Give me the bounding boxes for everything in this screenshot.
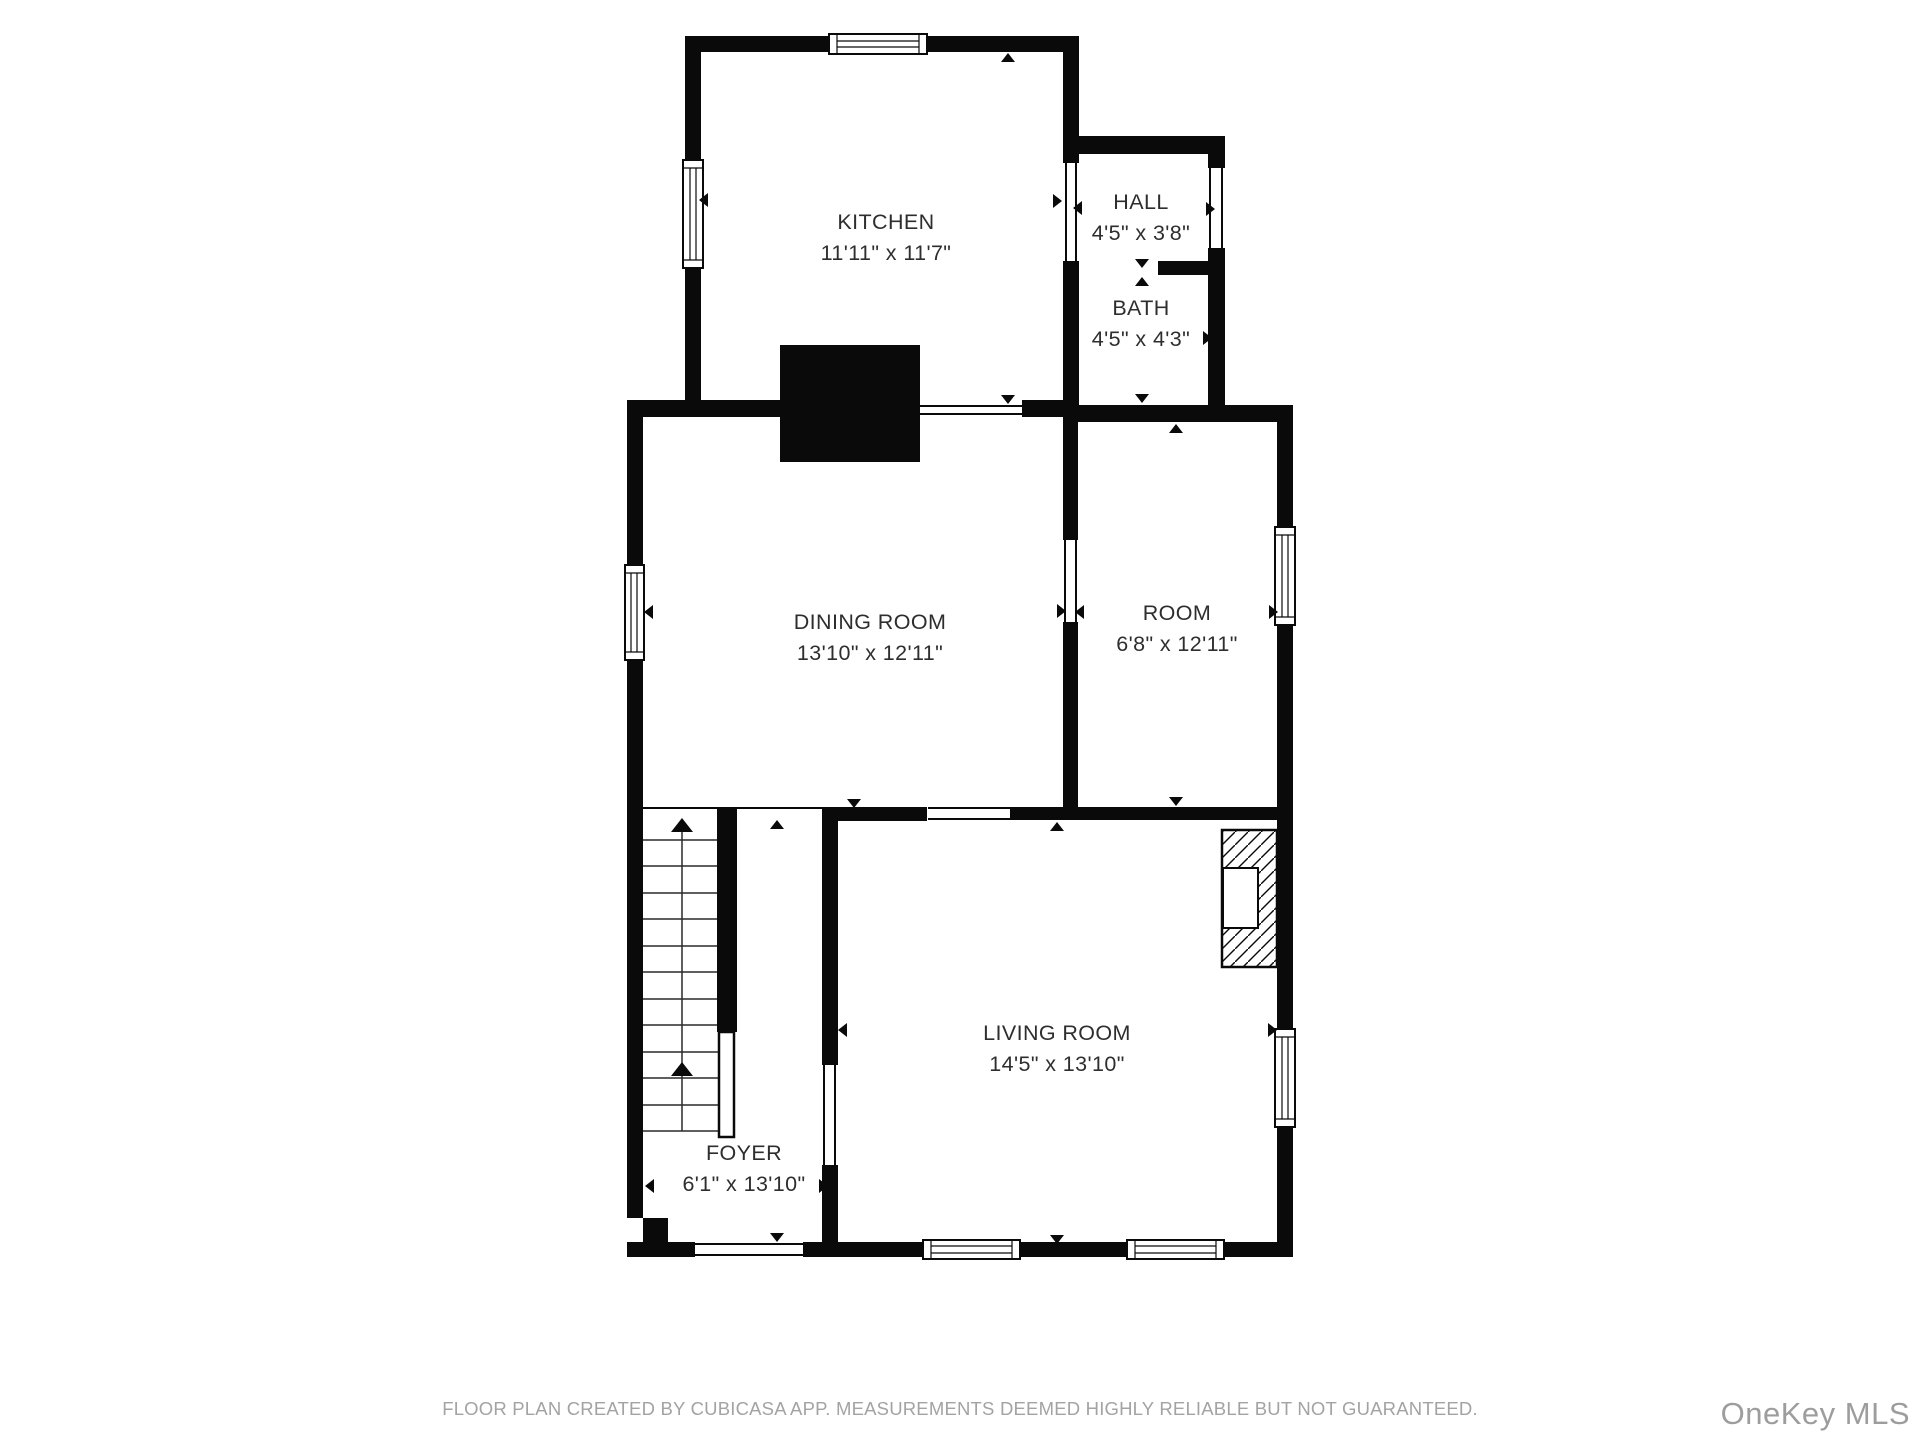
wall-segment bbox=[1063, 405, 1293, 422]
wall-segment bbox=[627, 660, 643, 1218]
wall-segment bbox=[1063, 622, 1078, 807]
room-dimensions: 13'10" x 12'11" bbox=[794, 638, 947, 669]
room-label-dining-room: DINING ROOM 13'10" x 12'11" bbox=[794, 607, 947, 669]
wall-segment bbox=[1063, 36, 1079, 163]
fireplace bbox=[1222, 830, 1277, 967]
room-name: KITCHEN bbox=[821, 207, 952, 238]
chimney-block bbox=[780, 345, 920, 462]
arrow-down-icon bbox=[1135, 394, 1149, 403]
fireplace-firebox bbox=[1223, 868, 1258, 928]
room-label-hall: HALL 4'5" x 3'8" bbox=[1092, 187, 1190, 249]
wall-segment bbox=[822, 821, 838, 1065]
wall-segment bbox=[822, 807, 927, 821]
window bbox=[1127, 1240, 1224, 1259]
room-name: DINING ROOM bbox=[794, 607, 947, 638]
arrow-up-icon bbox=[1135, 277, 1149, 286]
floor-plan-drawing bbox=[0, 0, 1920, 1440]
arrow-left-icon bbox=[644, 605, 653, 619]
window bbox=[625, 565, 644, 660]
room-label-room: ROOM 6'8" x 12'11" bbox=[1116, 598, 1238, 660]
arrow-up-icon bbox=[1001, 53, 1015, 62]
wall-segment bbox=[1010, 807, 1293, 820]
stair-direction-arrow bbox=[671, 818, 693, 832]
room-dimensions: 4'5" x 4'3" bbox=[1092, 324, 1190, 355]
room-dimensions: 6'8" x 12'11" bbox=[1116, 629, 1238, 660]
arrow-right-icon bbox=[1053, 194, 1062, 208]
wall-segment bbox=[1277, 405, 1293, 527]
room-dimensions: 4'5" x 3'8" bbox=[1092, 218, 1190, 249]
window bbox=[1275, 1029, 1295, 1127]
stair-direction-arrow bbox=[671, 1062, 693, 1076]
window bbox=[683, 160, 703, 268]
wall-segment bbox=[1208, 248, 1225, 262]
room-name: BATH bbox=[1092, 293, 1190, 324]
arrow-up-icon bbox=[1050, 822, 1064, 831]
room-dimensions: 14'5" x 13'10" bbox=[983, 1049, 1131, 1080]
window bbox=[923, 1240, 1020, 1259]
room-label-living-room: LIVING ROOM 14'5" x 13'10" bbox=[983, 1018, 1131, 1080]
arrow-down-icon bbox=[1135, 259, 1149, 268]
wall-segment bbox=[1277, 625, 1293, 1029]
room-name: LIVING ROOM bbox=[983, 1018, 1131, 1049]
wall-segment bbox=[1022, 400, 1063, 417]
wall-segment bbox=[685, 268, 701, 400]
room-dimensions: 6'1" x 13'10" bbox=[682, 1169, 805, 1200]
arrow-up-icon bbox=[1169, 424, 1183, 433]
room-label-foyer: FOYER 6'1" x 13'10" bbox=[682, 1138, 805, 1200]
arrow-down-icon bbox=[1169, 797, 1183, 806]
room-name: HALL bbox=[1092, 187, 1190, 218]
wall-segment bbox=[1079, 136, 1225, 154]
wall-segment bbox=[1063, 422, 1078, 540]
wall-segment bbox=[1208, 154, 1225, 168]
room-dimensions: 11'11" x 11'7" bbox=[821, 238, 952, 269]
arrow-down-icon bbox=[847, 799, 861, 808]
window bbox=[1275, 527, 1295, 625]
wall-segment bbox=[627, 400, 643, 565]
room-label-kitchen: KITCHEN 11'11" x 11'7" bbox=[821, 207, 952, 269]
wall-segment bbox=[1208, 262, 1225, 405]
arrow-down-icon bbox=[1001, 395, 1015, 404]
arrow-left-icon bbox=[645, 1179, 654, 1193]
arrow-down-icon bbox=[770, 1233, 784, 1242]
watermark-text: OneKey MLS bbox=[1721, 1396, 1910, 1432]
wall-segment bbox=[685, 36, 701, 162]
arrow-left-icon bbox=[1073, 201, 1082, 215]
disclaimer-text: FLOOR PLAN CREATED BY CUBICASA APP. MEAS… bbox=[0, 1398, 1920, 1420]
window bbox=[829, 34, 927, 54]
floor-plan-page: KITCHEN 11'11" x 11'7" HALL 4'5" x 3'8" … bbox=[0, 0, 1920, 1440]
wall-segment bbox=[627, 1242, 695, 1257]
room-name: FOYER bbox=[682, 1138, 805, 1169]
stair-railing bbox=[719, 1032, 734, 1137]
wall-segment bbox=[717, 807, 737, 1032]
arrow-left-icon bbox=[838, 1023, 847, 1037]
wall-segment bbox=[1277, 1127, 1293, 1257]
room-name: ROOM bbox=[1116, 598, 1238, 629]
wall-segment bbox=[627, 400, 780, 417]
room-label-bath: BATH 4'5" x 4'3" bbox=[1092, 293, 1190, 355]
arrow-up-icon bbox=[770, 820, 784, 829]
